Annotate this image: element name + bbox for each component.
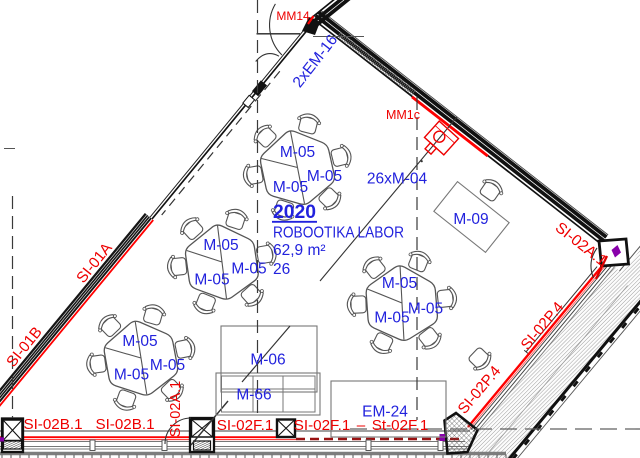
- svg-text:M-05: M-05: [307, 168, 342, 185]
- svg-text:M-05: M-05: [231, 261, 266, 278]
- svg-text:M-05: M-05: [150, 357, 185, 374]
- svg-text:SI-02B.1: SI-02B.1: [95, 416, 154, 433]
- svg-text:M-05: M-05: [194, 272, 229, 289]
- svg-text:62,9 m²: 62,9 m²: [273, 242, 326, 259]
- svg-text:M-05: M-05: [382, 275, 417, 292]
- svg-text:MM1c: MM1c: [386, 108, 420, 122]
- svg-text:SI-02A.1: SI-02A.1: [168, 381, 184, 437]
- svg-text:–: –: [357, 417, 366, 434]
- svg-text:26xM-04: 26xM-04: [367, 171, 428, 188]
- svg-text:M-05: M-05: [280, 144, 315, 161]
- svg-text:SI-02F.1: SI-02F.1: [294, 417, 351, 434]
- svg-text:M-05: M-05: [203, 237, 238, 254]
- svg-text:M-05: M-05: [374, 310, 409, 327]
- svg-text:M-09: M-09: [453, 211, 488, 228]
- svg-text:ROBOOTIKA LABOR: ROBOOTIKA LABOR: [273, 225, 404, 242]
- svg-text:M-05: M-05: [408, 301, 443, 318]
- svg-text:M-66: M-66: [236, 387, 271, 404]
- svg-text:2020: 2020: [273, 202, 316, 223]
- svg-text:26: 26: [273, 261, 290, 278]
- svg-text:M-05: M-05: [273, 179, 308, 196]
- svg-text:M-05: M-05: [114, 367, 149, 384]
- svg-text:SI-02F.1: SI-02F.1: [217, 417, 274, 434]
- svg-text:M-05: M-05: [122, 333, 157, 350]
- svg-text:SI-02B.1: SI-02B.1: [23, 416, 82, 433]
- svg-text:MM14: MM14: [276, 9, 310, 23]
- svg-text:St-02F.1: St-02F.1: [372, 417, 429, 434]
- svg-text:M-06: M-06: [250, 352, 285, 369]
